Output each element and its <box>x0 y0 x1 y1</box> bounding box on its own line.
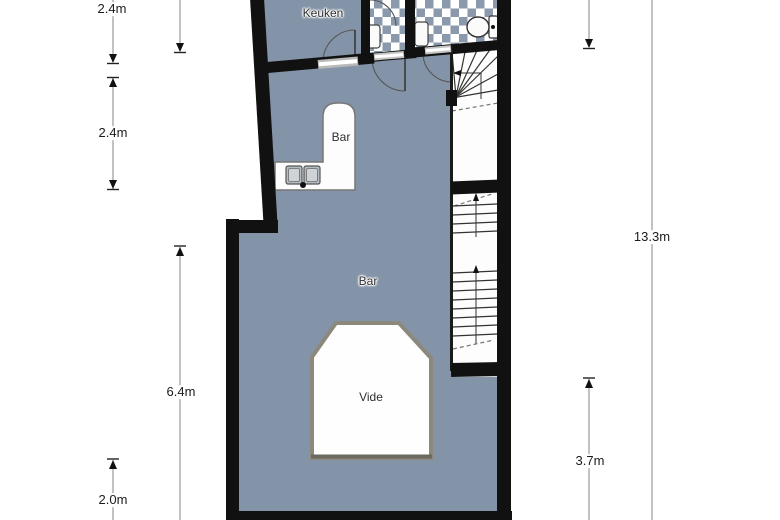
wall-stairwell-stub <box>446 90 457 106</box>
wall-stairwell-mid <box>451 186 500 188</box>
dim-label-left-inner: 6.4m <box>165 385 198 399</box>
dim-label-left-middle: 2.4m <box>97 126 130 140</box>
wall-toilet-divider <box>405 0 415 55</box>
floorplan-canvas: Keuken Bar Bar Vide 2.4m 2.4m 6.4m 2.0m … <box>0 0 780 520</box>
toilet-2-bowl <box>467 16 498 38</box>
dim-label-left-bottom: 2.0m <box>97 493 130 507</box>
dim-label-right-lower: 3.7m <box>574 454 607 468</box>
bar-sink-right <box>304 166 320 184</box>
wall-right <box>497 0 511 520</box>
dim-label-right-total: 13.3m <box>632 230 672 244</box>
room-label-kitchen: Keuken <box>303 6 344 20</box>
dim-label-left-top: 2.4m <box>96 2 129 16</box>
wall-kitchen-right <box>361 0 370 61</box>
room-label-vide: Vide <box>359 390 383 404</box>
wall-bottom <box>226 511 512 520</box>
room-label-bar-room: Bar <box>359 274 378 288</box>
toilet-2-sink <box>415 22 428 46</box>
room-label-bar-counter: Bar <box>332 130 351 144</box>
bar-sink-faucet <box>300 182 306 188</box>
floorplan-drawing <box>0 0 780 520</box>
bar-sink-left <box>286 166 302 184</box>
wall-stairwell-bottom <box>451 369 503 370</box>
wall-left-lower <box>226 219 239 520</box>
